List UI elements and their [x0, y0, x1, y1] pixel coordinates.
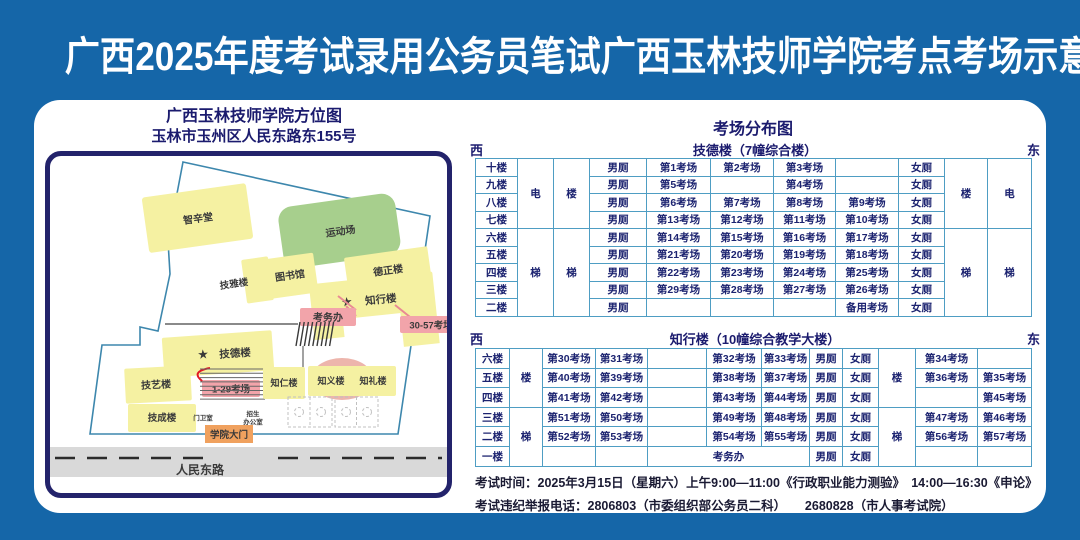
womens-toilet-cell: 女厕 [899, 264, 945, 282]
corridor-cell [648, 368, 707, 388]
exam-room-cell: 第7考场 [711, 194, 774, 212]
gate-label: 学院大门 [210, 429, 248, 441]
stairs-label: 梯 [879, 407, 916, 466]
exam-room-cell [543, 446, 596, 466]
corridor-cell [648, 388, 707, 408]
exam-room-cell: 第45考场 [978, 388, 1032, 408]
mens-toilet-cell: 男厕 [590, 264, 647, 282]
east-label: 东 [1027, 140, 1040, 159]
exam-room-cell: 第29考场 [647, 281, 711, 299]
exam-room-cell: 第5考场 [647, 176, 711, 194]
zhiren-label: 知仁楼 [269, 377, 297, 388]
exam-room-cell [916, 446, 978, 466]
exam-venue-poster: 广西2025年度考试录用公务员笔试广西玉林技师学院考点考场示意图 广西玉林技师学… [0, 0, 1080, 540]
map-heading-name: 广西玉林技师学院方位图 [54, 107, 454, 127]
womens-toilet-cell: 女厕 [899, 176, 945, 194]
exam-room-cell: 第24考场 [774, 264, 836, 282]
exam-room-cell: 第17考场 [836, 229, 899, 247]
exam-room-cell: 第40考场 [543, 368, 596, 388]
zhiyi-label: 知义楼 [316, 375, 344, 386]
exam-room-cell: 第57考场 [978, 427, 1032, 447]
table1-caption: 西 技德楼（7幢综合楼） 东 [470, 140, 1040, 159]
exam-room-cell: 第26考场 [836, 281, 899, 299]
jide-room-table: 十楼电楼男厕第1考场第2考场第3考场女厕楼电九楼男厕第5考场第4考场女厕八楼男厕… [475, 158, 1032, 317]
exam-room-cell [647, 299, 711, 317]
east-label: 东 [1027, 329, 1040, 348]
rooms-1-29-label: 1-29考场 [212, 384, 251, 396]
west-label: 西 [470, 140, 483, 159]
exam-room-cell: 第25考场 [836, 264, 899, 282]
floor-label: 五楼 [476, 368, 510, 388]
mens-toilet-cell: 男厕 [590, 211, 647, 229]
table2-building-name: 知行楼（10幢综合教学大楼） [483, 329, 1027, 348]
mens-toilet-cell: 男厕 [810, 388, 843, 408]
womens-toilet-cell: 女厕 [899, 229, 945, 247]
exam-room-cell: 第44考场 [762, 388, 810, 408]
womens-toilet-cell: 女厕 [843, 446, 879, 466]
table-row: 三楼梯第51考场第50考场第49考场第48考场男厕女厕梯第47考场第46考场 [476, 407, 1032, 427]
exam-room-cell: 第47考场 [916, 407, 978, 427]
womens-toilet-cell: 女厕 [843, 427, 879, 447]
mens-toilet-cell: 男厕 [810, 407, 843, 427]
gatehouse-label: 门卫室 [193, 413, 213, 422]
floor-label: 二楼 [476, 427, 510, 447]
exam-room-cell: 第37考场 [762, 368, 810, 388]
exam-room-cell: 第50考场 [596, 407, 648, 427]
exam-room-cell [836, 159, 899, 177]
floor-label: 九楼 [476, 176, 518, 194]
mens-toilet-cell: 男厕 [590, 194, 647, 212]
table-row: 六楼楼第30考场第31考场第32考场第33考场男厕女厕楼第34考场 [476, 349, 1032, 369]
stairs-label: 楼 [879, 349, 916, 408]
exam-room-cell: 第56考场 [916, 427, 978, 447]
exam-room-cell: 第15考场 [711, 229, 774, 247]
zhili-label: 知礼楼 [358, 375, 386, 386]
road [50, 447, 447, 477]
exam-room-cell [978, 349, 1032, 369]
table-row: 五楼第40考场第39考场第38考场第37考场男厕女厕第36考场第35考场 [476, 368, 1032, 388]
table1-building-name: 技德楼（7幢综合楼） [483, 140, 1027, 159]
exam-room-cell: 第27考场 [774, 281, 836, 299]
exam-room-cell: 第16考场 [774, 229, 836, 247]
exam-room-cell: 第43考场 [707, 388, 762, 408]
mens-toilet-cell: 男厕 [810, 368, 843, 388]
exam-room-cell: 备用考场 [836, 299, 899, 317]
exam-room-cell: 第8考场 [774, 194, 836, 212]
floor-label: 六楼 [476, 229, 518, 247]
exam-office-cell: 考务办 [648, 446, 810, 466]
womens-toilet-cell: 女厕 [843, 349, 879, 369]
exam-room-cell: 第1考场 [647, 159, 711, 177]
elevator-label: 电 [988, 159, 1032, 229]
exam-room-cell: 第2考场 [711, 159, 774, 177]
jide-label: 技德楼 [219, 346, 252, 361]
exam-room-cell [978, 446, 1032, 466]
exam-room-cell: 第46考场 [978, 407, 1032, 427]
corridor-cell [648, 427, 707, 447]
mens-toilet-cell: 男厕 [590, 299, 647, 317]
floor-label: 二楼 [476, 299, 518, 317]
exam-room-cell: 第33考场 [762, 349, 810, 369]
womens-toilet-cell: 女厕 [843, 388, 879, 408]
court-right [335, 397, 378, 427]
west-label: 西 [470, 329, 483, 348]
zhixing-room-table: 六楼楼第30考场第31考场第32考场第33考场男厕女厕楼第34考场五楼第40考场… [475, 348, 1032, 467]
distribution-heading: 考场分布图 [475, 115, 1031, 139]
exam-room-cell: 第35考场 [978, 368, 1032, 388]
admissions-office-label-l1: 招生 [247, 409, 261, 418]
exam-room-cell: 第14考场 [647, 229, 711, 247]
exam-room-cell: 第48考场 [762, 407, 810, 427]
exam-room-cell: 第52考场 [543, 427, 596, 447]
exam-time-line: 考试时间：2025年3月15日（星期六）上午9:00—11:00《行政职业能力测… [475, 472, 1050, 491]
exam-room-cell: 第36考场 [916, 368, 978, 388]
floor-label: 三楼 [476, 281, 518, 299]
exam-room-cell [596, 446, 648, 466]
kaowuban-label: 考务办 [313, 311, 343, 324]
exam-room-cell: 第31考场 [596, 349, 648, 369]
jicheng-label: 技成楼 [148, 412, 177, 424]
mens-toilet-cell: 男厕 [810, 446, 843, 466]
exam-room-cell: 第34考场 [916, 349, 978, 369]
floor-label: 五楼 [476, 246, 518, 264]
table-row: 四楼第41考场第42考场第43考场第44考场男厕女厕第45考场 [476, 388, 1032, 408]
exam-room-cell: 第21考场 [647, 246, 711, 264]
elevator-label: 梯 [518, 229, 554, 317]
womens-toilet-cell: 女厕 [843, 407, 879, 427]
road-label: 人民东路 [176, 462, 225, 477]
campus-map: 智辛堂 运动场 技雅楼 图书馆 [50, 156, 447, 493]
exam-room-cell: 第53考场 [596, 427, 648, 447]
table-row: 二楼第52考场第53考场第54考场第55考场男厕女厕第56考场第57考场 [476, 427, 1032, 447]
jide-star-icon: ★ [198, 349, 209, 362]
womens-toilet-cell: 女厕 [899, 299, 945, 317]
corridor-cell [648, 349, 707, 369]
table-row: 六楼梯梯男厕第14考场第15考场第16考场第17考场女厕梯梯 [476, 229, 1032, 247]
stairs-label: 楼 [510, 349, 543, 408]
floor-label: 十楼 [476, 159, 518, 177]
floor-label: 四楼 [476, 264, 518, 282]
report-phone-line: 考试违纪举报电话：2806803（市委组织部公务员二科） 2680828（市人事… [475, 495, 1050, 514]
map-heading: 广西玉林技师学院方位图 玉林市玉州区人民东路东155号 [54, 107, 454, 146]
mens-toilet-cell: 男厕 [590, 281, 647, 299]
court-left [288, 397, 332, 427]
floor-label: 四楼 [476, 388, 510, 408]
exam-room-cell: 第38考场 [707, 368, 762, 388]
poster-title: 广西2025年度考试录用公务员笔试广西玉林技师学院考点考场示意图 [65, 28, 1015, 86]
table2-caption: 西 知行楼（10幢综合教学大楼） 东 [470, 329, 1040, 348]
exam-room-cell [711, 176, 774, 194]
elevator-label: 电 [518, 159, 554, 229]
exam-room-cell: 第55考场 [762, 427, 810, 447]
exam-room-cell: 第42考场 [596, 388, 648, 408]
womens-toilet-cell: 女厕 [899, 211, 945, 229]
jiyi-building: 技艺楼 [124, 365, 192, 403]
campus-map-frame: 智辛堂 运动场 技雅楼 图书馆 [45, 151, 452, 498]
exam-room-cell: 第19考场 [774, 246, 836, 264]
floor-label: 三楼 [476, 407, 510, 427]
exam-room-cell: 第32考场 [707, 349, 762, 369]
exam-room-cell [916, 388, 978, 408]
womens-toilet-cell: 女厕 [899, 159, 945, 177]
exam-room-cell: 第12考场 [711, 211, 774, 229]
womens-toilet-cell: 女厕 [899, 281, 945, 299]
floor-label: 七楼 [476, 211, 518, 229]
exam-room-cell: 第22考场 [647, 264, 711, 282]
exam-room-cell: 第11考场 [774, 211, 836, 229]
mens-toilet-cell: 男厕 [590, 176, 647, 194]
table-row: 一楼考务办男厕女厕 [476, 446, 1032, 466]
admissions-office-label-l2: 办公室 [243, 417, 263, 426]
exam-room-cell: 第3考场 [774, 159, 836, 177]
floor-label: 六楼 [476, 349, 510, 369]
mens-toilet-cell: 男厕 [590, 159, 647, 177]
floor-label: 一楼 [476, 446, 510, 466]
stairs-label: 楼 [554, 159, 590, 229]
exam-room-cell: 第4考场 [774, 176, 836, 194]
exam-room-cell: 第39考场 [596, 368, 648, 388]
exam-room-cell: 第6考场 [647, 194, 711, 212]
stairs-label: 梯 [554, 229, 590, 317]
mens-toilet-cell: 男厕 [590, 229, 647, 247]
elevator-label: 梯 [988, 229, 1032, 317]
jiya-label: 技雅楼 [219, 276, 249, 292]
corridor-cell [648, 407, 707, 427]
womens-toilet-cell: 女厕 [843, 368, 879, 388]
hall-building: 智辛堂 [142, 183, 254, 253]
table-row: 十楼电楼男厕第1考场第2考场第3考场女厕楼电 [476, 159, 1032, 177]
exam-room-cell: 第10考场 [836, 211, 899, 229]
mens-toilet-cell: 男厕 [590, 246, 647, 264]
exam-room-cell: 第20考场 [711, 246, 774, 264]
exam-room-cell [774, 299, 836, 317]
womens-toilet-cell: 女厕 [899, 194, 945, 212]
mens-toilet-cell: 男厕 [810, 349, 843, 369]
mens-toilet-cell: 男厕 [810, 427, 843, 447]
map-heading-address: 玉林市玉州区人民东路东155号 [54, 127, 454, 146]
exam-room-cell: 第28考场 [711, 281, 774, 299]
exam-room-cell: 第51考场 [543, 407, 596, 427]
exam-room-cell: 第13考场 [647, 211, 711, 229]
exam-room-cell [711, 299, 774, 317]
exam-room-cell: 第41考场 [543, 388, 596, 408]
exam-room-cell: 第9考场 [836, 194, 899, 212]
exam-room-cell: 第23考场 [711, 264, 774, 282]
exam-room-cell: 第18考场 [836, 246, 899, 264]
exam-room-cell: 第54考场 [707, 427, 762, 447]
stairs-label: 梯 [510, 407, 543, 466]
stairs-label: 梯 [945, 229, 988, 317]
rooms-30-57-label: 30-57考场 [409, 320, 447, 332]
exam-room-cell [836, 176, 899, 194]
exam-room-cell: 第30考场 [543, 349, 596, 369]
content-panel: 广西玉林技师学院方位图 玉林市玉州区人民东路东155号 智辛堂 运动场 [34, 100, 1046, 513]
stairs-label: 楼 [945, 159, 988, 229]
womens-toilet-cell: 女厕 [899, 246, 945, 264]
exam-room-cell: 第49考场 [707, 407, 762, 427]
floor-label: 八楼 [476, 194, 518, 212]
